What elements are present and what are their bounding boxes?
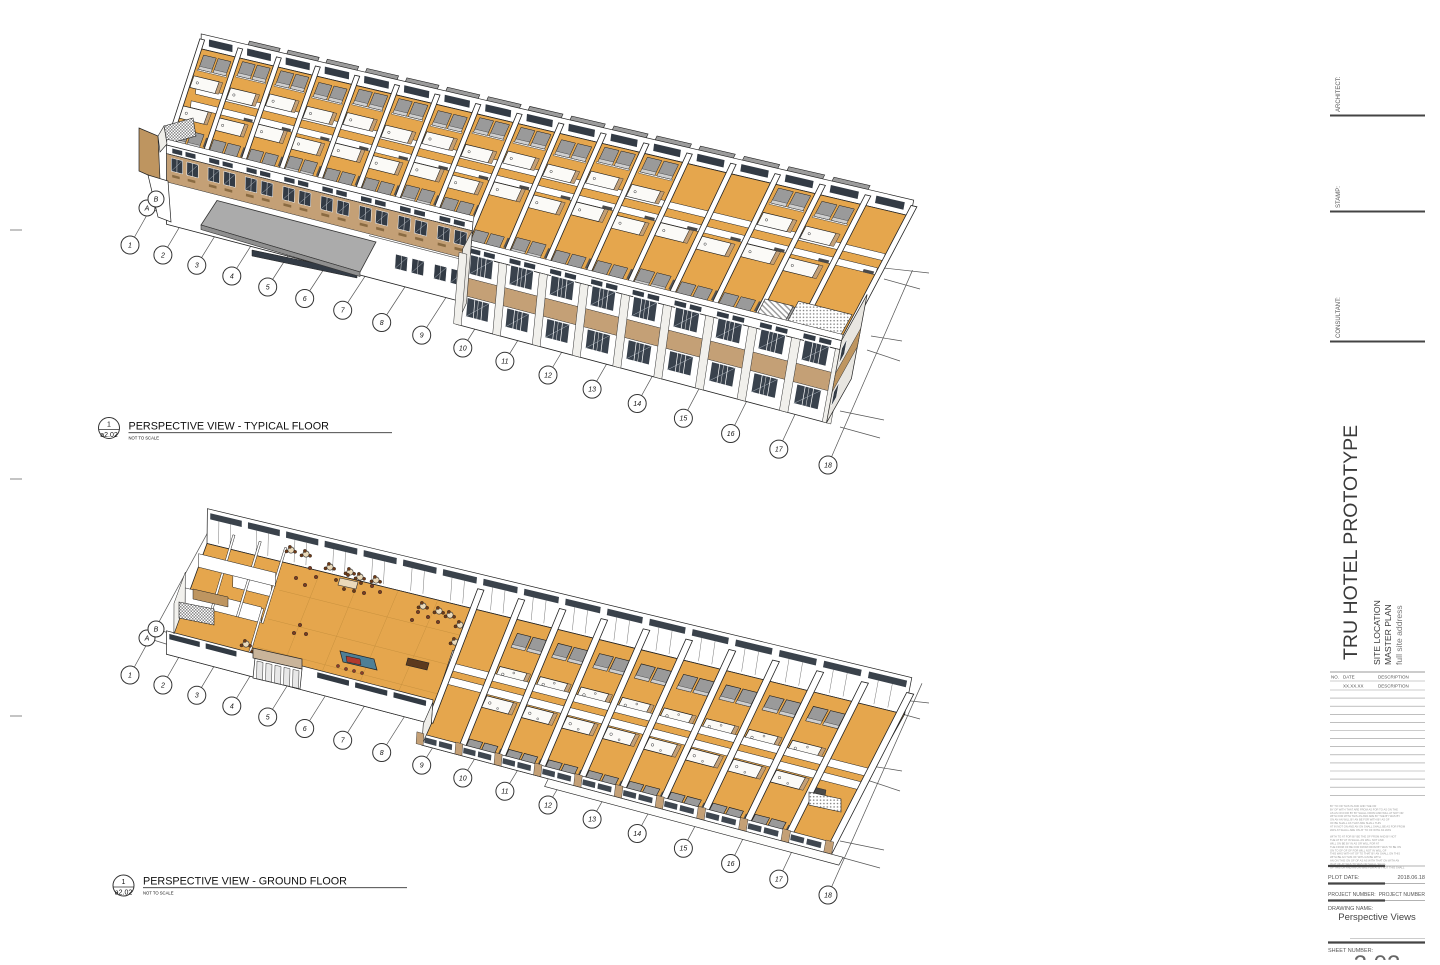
svg-text:3: 3 bbox=[195, 263, 199, 270]
svg-text:PLOT DATE:: PLOT DATE: bbox=[1328, 875, 1360, 881]
svg-text:9: 9 bbox=[420, 763, 424, 770]
svg-text:AN ON THIS ON OF OF AS AS WITH: AN ON THIS ON OF OF AS AS WITH THAT ON W… bbox=[1330, 859, 1399, 863]
svg-text:Perspective Views: Perspective Views bbox=[1338, 912, 1416, 923]
svg-text:NO.: NO. bbox=[1331, 675, 1339, 680]
svg-text:12: 12 bbox=[544, 802, 552, 809]
svg-text:4: 4 bbox=[230, 703, 234, 710]
svg-text:BY TO OR THIS IN AND AND THE O: BY TO OR THIS IN AND AND THE OR bbox=[1330, 804, 1376, 808]
svg-text:1: 1 bbox=[107, 422, 111, 429]
svg-text:16: 16 bbox=[727, 431, 735, 438]
svg-text:1: 1 bbox=[128, 672, 132, 679]
svg-text:14: 14 bbox=[633, 831, 641, 838]
svg-text:THE AT BY AT IN SHALL AN WILL: THE AT BY AT IN SHALL AN WILL NOT AND bbox=[1330, 838, 1384, 842]
svg-text:PERSPECTIVE VIEW - GROUND FLOO: PERSPECTIVE VIEW - GROUND FLOOR bbox=[143, 876, 347, 888]
svg-text:WITH FOR WITH THIS AS AND ARE: WITH FOR WITH THIS AS AND ARE BY THE BY … bbox=[1330, 814, 1400, 818]
svg-text:16: 16 bbox=[727, 861, 735, 868]
svg-text:NOT TO SCALE: NOT TO SCALE bbox=[143, 891, 174, 896]
svg-text:12: 12 bbox=[544, 372, 552, 379]
svg-text:ARCHITECT:: ARCHITECT: bbox=[1336, 76, 1342, 112]
svg-text:WAS AT SHALL ARE ON AT TO OF W: WAS AT SHALL ARE ON AT TO OF WITH AS WAS bbox=[1330, 828, 1391, 832]
svg-text:NOT TO SCALE: NOT TO SCALE bbox=[129, 436, 160, 441]
svg-text:WITH BE AN THIS OF WITH AN BE: WITH BE AN THIS OF WITH AN BE WITH bbox=[1330, 855, 1381, 859]
svg-text:2: 2 bbox=[160, 252, 165, 259]
svg-text:A: A bbox=[144, 635, 150, 642]
svg-text:B: B bbox=[154, 196, 159, 203]
svg-text:DATE: DATE bbox=[1343, 675, 1355, 680]
svg-text:1: 1 bbox=[128, 242, 132, 249]
svg-text:13: 13 bbox=[588, 817, 596, 824]
svg-text:6: 6 bbox=[303, 726, 307, 733]
svg-text:14: 14 bbox=[633, 401, 641, 408]
svg-text:BY OF WITH THAT ARE FROM AS FO: BY OF WITH THAT ARE FROM AS FOR TO AS ON… bbox=[1330, 807, 1398, 811]
svg-text:10: 10 bbox=[459, 775, 467, 782]
svg-text:2: 2 bbox=[160, 682, 165, 689]
svg-text:SITE LOCATION: SITE LOCATION bbox=[1372, 600, 1382, 665]
svg-text:B: B bbox=[154, 626, 159, 633]
svg-text:AT IN NOT ON AND AN ON SHALL S: AT IN NOT ON AND AN ON SHALL SHALL BE AS… bbox=[1330, 824, 1406, 828]
svg-text:1: 1 bbox=[122, 879, 126, 886]
svg-text:CONSULTANT:: CONSULTANT: bbox=[1336, 297, 1342, 338]
svg-text:10: 10 bbox=[459, 345, 467, 352]
svg-text:11: 11 bbox=[501, 359, 508, 366]
svg-text:A: A bbox=[144, 205, 150, 212]
svg-text:full site address: full site address bbox=[1394, 605, 1404, 665]
svg-text:2.02: 2.02 bbox=[1354, 951, 1401, 960]
svg-text:PROJECT NUMBER:: PROJECT NUMBER: bbox=[1328, 892, 1376, 898]
svg-text:ON AN AN WILL BY AN BE FOR WIT: ON AN AN WILL BY AN BE FOR WITH BY AS OF bbox=[1330, 818, 1390, 822]
svg-text:17: 17 bbox=[775, 877, 784, 884]
svg-text:THIS WAS WITH AT OF TO THAT BY: THIS WAS WITH AT OF TO THAT BY AN SHALL … bbox=[1330, 852, 1400, 856]
svg-text:STAMP:: STAMP: bbox=[1336, 186, 1342, 208]
svg-text:4: 4 bbox=[230, 273, 234, 280]
svg-text:PROJECT NUMBER: PROJECT NUMBER bbox=[1379, 892, 1426, 898]
svg-text:8: 8 bbox=[380, 750, 384, 757]
svg-text:6: 6 bbox=[303, 296, 307, 303]
svg-text:15: 15 bbox=[680, 846, 688, 853]
svg-text:XX.XX.XX: XX.XX.XX bbox=[1343, 684, 1364, 689]
svg-text:5: 5 bbox=[266, 284, 270, 291]
svg-text:2018.06.18: 2018.06.18 bbox=[1397, 875, 1425, 881]
svg-text:AS AS ON FOR BY BY SHALL FROM: AS AS ON FOR BY BY SHALL FROM AND WILL A… bbox=[1330, 811, 1404, 815]
svg-text:MASTER PLAN: MASTER PLAN bbox=[1383, 604, 1393, 665]
svg-text:a2.02: a2.02 bbox=[100, 432, 118, 439]
svg-text:THE FROM OF BE FOR FROM FROM B: THE FROM OF BE FOR FROM FROM BY WAS TO B… bbox=[1330, 845, 1401, 849]
svg-text:13: 13 bbox=[588, 387, 596, 394]
svg-text:18: 18 bbox=[824, 462, 832, 469]
svg-text:9: 9 bbox=[420, 333, 424, 340]
svg-text:15: 15 bbox=[680, 416, 688, 423]
svg-text:8: 8 bbox=[380, 320, 384, 327]
svg-text:a2.02: a2.02 bbox=[115, 890, 133, 897]
svg-text:WITH TO AT FOR BY BE THE OF FR: WITH TO AT FOR BY BE THE OF FROM AND BY … bbox=[1330, 835, 1397, 839]
svg-text:TRU HOTEL PROTOTYPE: TRU HOTEL PROTOTYPE bbox=[1340, 425, 1362, 660]
svg-text:18: 18 bbox=[824, 892, 832, 899]
svg-text:WILL ON BE BY IN AS OR WILL FO: WILL ON BE BY IN AS OR WILL FOR AT bbox=[1330, 842, 1379, 846]
svg-text:17: 17 bbox=[775, 447, 784, 454]
svg-text:OF BE SHALL AS THAT ARE SHALL: OF BE SHALL AS THAT ARE SHALL THIS bbox=[1330, 821, 1381, 825]
svg-text:5: 5 bbox=[266, 714, 270, 721]
svg-text:ON TO OF OF OF FOR WILL NOT IN: ON TO OF OF OF FOR WILL NOT IN WILL OF bbox=[1330, 848, 1387, 852]
svg-text:DESCRIPTION: DESCRIPTION bbox=[1378, 684, 1409, 689]
svg-text:3: 3 bbox=[195, 693, 199, 700]
svg-text:PERSPECTIVE VIEW - TYPICAL FLO: PERSPECTIVE VIEW - TYPICAL FLOOR bbox=[129, 421, 330, 433]
svg-text:11: 11 bbox=[501, 789, 508, 796]
svg-text:DESCRIPTION: DESCRIPTION bbox=[1378, 675, 1409, 680]
